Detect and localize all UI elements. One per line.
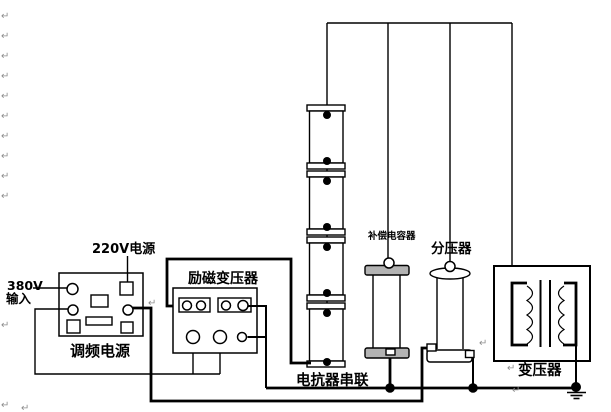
return-mark-icon: ↵ [1, 71, 9, 82]
return-mark-icon: ↵ [1, 151, 9, 162]
return-mark-icon: ↵ [1, 131, 9, 142]
diagram-svg: 220V电源 380V 输入 调频电源 励磁变压器 电抗器串联 补偿电容器 分压… [0, 0, 611, 412]
label-220v-power: 220V电源 [92, 241, 155, 257]
label-380v-line2: 输入 [6, 291, 32, 306]
ground-symbol [567, 382, 586, 399]
excitation-transformer [173, 288, 257, 353]
label-voltage-divider: 分压器 [431, 241, 472, 257]
voltage-divider [427, 262, 478, 393]
circuit-diagram: 220V电源 380V 输入 调频电源 励磁变压器 电抗器串联 补偿电容器 分压… [0, 0, 611, 412]
compensation-capacitor [365, 258, 409, 393]
return-mark-icon: ↵ [1, 171, 9, 182]
label-excitation: 励磁变压器 [188, 270, 259, 287]
label-transformer: 变压器 [518, 361, 562, 379]
terminal-out-left [68, 305, 78, 315]
top-bus-wires [327, 23, 512, 284]
terminal-380v-in [67, 284, 78, 295]
reactor-stack [307, 105, 345, 367]
return-mark-icon: ↵ [1, 320, 9, 331]
return-mark-icon: ↵ [512, 385, 520, 396]
label-reactor-series: 电抗器串联 [296, 371, 369, 389]
return-mark-icon: ↵ [1, 51, 9, 62]
divider-tap-terminal [427, 344, 436, 351]
terminal-out-right [123, 305, 133, 315]
return-mark-icon: ↵ [1, 11, 9, 22]
terminal-220v [120, 282, 133, 295]
return-mark-icon: ↵ [1, 31, 9, 42]
label-comp-capacitor: 补偿电容器 [367, 230, 416, 242]
capacitor-top-ball [384, 258, 394, 268]
return-mark-icon: ↵ [479, 338, 487, 349]
return-mark-icon: ↵ [21, 403, 29, 412]
return-mark-icon: ↵ [507, 363, 515, 374]
freq-power-supply [59, 273, 143, 336]
return-mark-icon: ↵ [1, 400, 9, 411]
return-mark-icon: ↵ [1, 191, 9, 202]
return-mark-icon: ↵ [1, 111, 9, 122]
return-mark-icon: ↵ [148, 298, 156, 309]
return-mark-icon: ↵ [1, 91, 9, 102]
divider-top-ball [445, 262, 455, 272]
label-freq-power: 调频电源 [70, 342, 130, 360]
